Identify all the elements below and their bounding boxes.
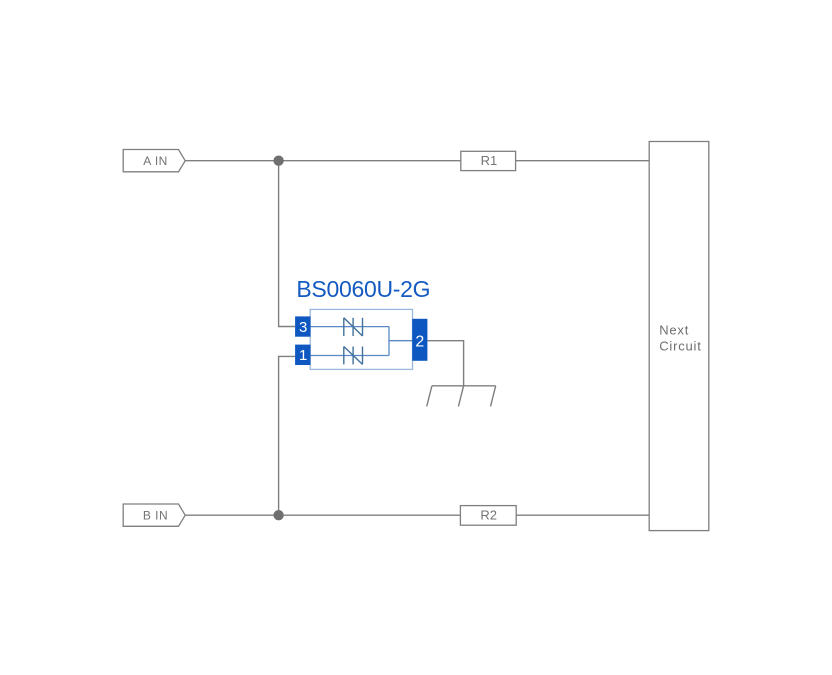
svg-text:2: 2	[415, 333, 424, 350]
svg-text:R1: R1	[481, 153, 498, 168]
svg-text:BS0060U-2G: BS0060U-2G	[296, 276, 430, 302]
svg-text:R2: R2	[480, 508, 497, 523]
svg-text:A IN: A IN	[143, 154, 167, 168]
svg-text:3: 3	[299, 319, 307, 336]
svg-text:1: 1	[299, 347, 307, 364]
svg-text:Next: Next	[659, 322, 689, 337]
svg-text:Circuit: Circuit	[659, 339, 701, 354]
svg-text:B IN: B IN	[143, 508, 168, 522]
